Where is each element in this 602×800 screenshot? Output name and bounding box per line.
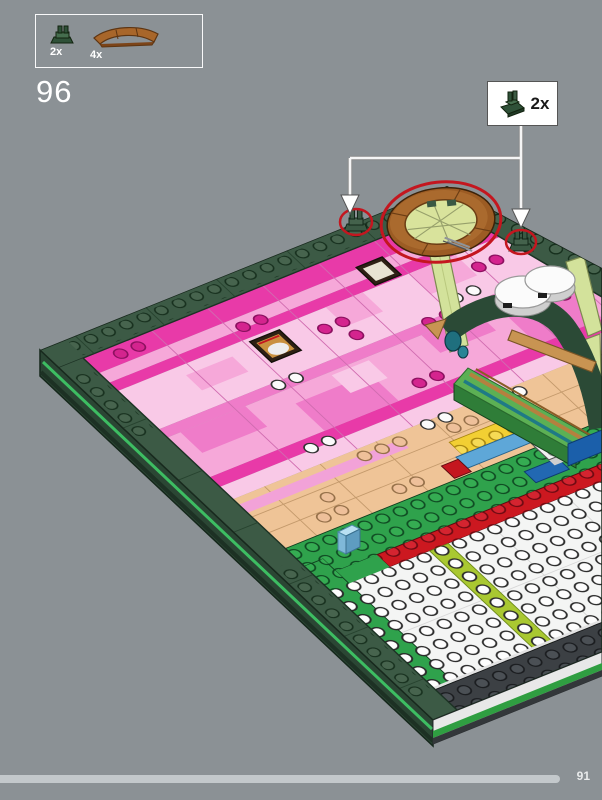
progress-bar [0, 775, 560, 783]
instruction-page: 2x 4x 96 2x 91 [0, 0, 602, 800]
callout-part-icon-green-clip [496, 89, 526, 119]
part-count: 2x [50, 46, 62, 58]
callout-box: 2x [487, 81, 558, 126]
parts-panel: 2x 4x [35, 14, 203, 68]
ring-clip-nub-2 [447, 199, 457, 206]
part-green-clip: 2x [50, 25, 76, 58]
part-icon-brown-curve [90, 22, 162, 48]
callout-count: 2x [531, 94, 550, 114]
progress-bar-fill [0, 775, 560, 783]
part-icon-green-clip [50, 25, 76, 45]
part-brown-curve: 4x [90, 22, 162, 61]
arrow-left [341, 195, 359, 214]
page-number: 91 [577, 769, 590, 783]
step-number: 96 [36, 74, 72, 110]
ring-clip-nub-1 [427, 200, 437, 207]
part-count: 4x [90, 49, 102, 61]
